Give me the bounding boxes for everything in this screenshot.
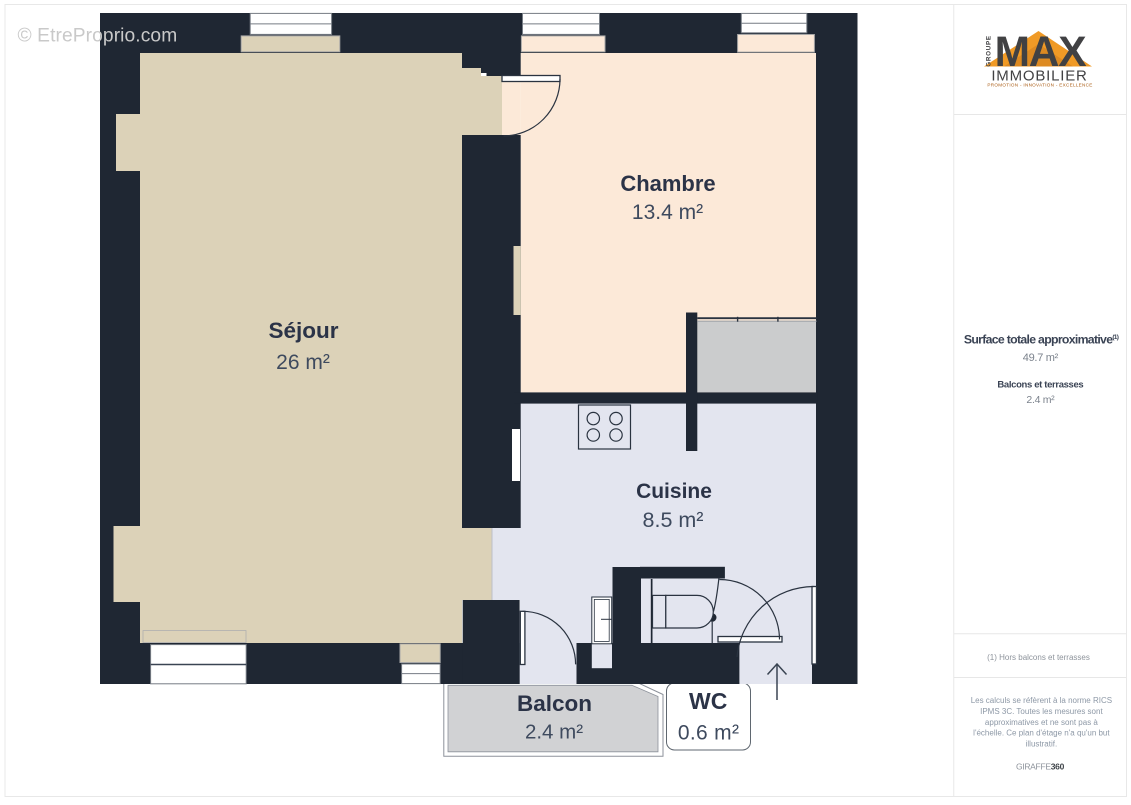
- svg-text:Cuisine: Cuisine: [636, 480, 712, 503]
- svg-text:illustratif.: illustratif.: [1026, 740, 1058, 749]
- svg-text:8.5 m²: 8.5 m²: [643, 508, 704, 532]
- svg-text:Séjour: Séjour: [268, 318, 338, 343]
- svg-text:49.7 m²: 49.7 m²: [1023, 352, 1059, 364]
- svg-text:GROUPE: GROUPE: [986, 35, 993, 67]
- svg-text:2.4 m²: 2.4 m²: [1026, 394, 1055, 406]
- svg-text:2.4 m²: 2.4 m²: [525, 721, 583, 744]
- svg-text:© EtreProprio.com: © EtreProprio.com: [18, 25, 178, 46]
- svg-text:approximatives et ne sont pas: approximatives et ne sont pas à: [985, 718, 1099, 727]
- svg-text:IPMS 3C. Toutes les mesures so: IPMS 3C. Toutes les mesures sont: [980, 707, 1103, 716]
- svg-text:Chambre: Chambre: [620, 171, 715, 196]
- svg-text:Balcons et terrasses: Balcons et terrasses: [997, 380, 1083, 391]
- svg-text:Balcon: Balcon: [517, 691, 592, 716]
- svg-text:(1) Hors balcons et terrasses: (1) Hors balcons et terrasses: [987, 653, 1090, 662]
- svg-text:Surface totale approximative(1: Surface totale approximative(1): [964, 333, 1119, 347]
- svg-text:GIRAFFE360: GIRAFFE360: [1016, 762, 1065, 772]
- svg-text:26 m²: 26 m²: [276, 351, 330, 374]
- svg-text:0.6 m²: 0.6 m²: [678, 722, 739, 745]
- svg-text:WC: WC: [689, 688, 727, 714]
- svg-text:l'échelle. Ce plan d'étage n'a: l'échelle. Ce plan d'étage n'a qu'un but: [973, 729, 1110, 738]
- svg-text:13.4 m²: 13.4 m²: [632, 201, 703, 224]
- svg-text:Les calculs se réfèrent à la n: Les calculs se réfèrent à la norme RICS: [971, 696, 1112, 705]
- svg-text:PROMOTION - INNOVATION - EXCEL: PROMOTION - INNOVATION - EXCELLENCE: [987, 82, 1092, 87]
